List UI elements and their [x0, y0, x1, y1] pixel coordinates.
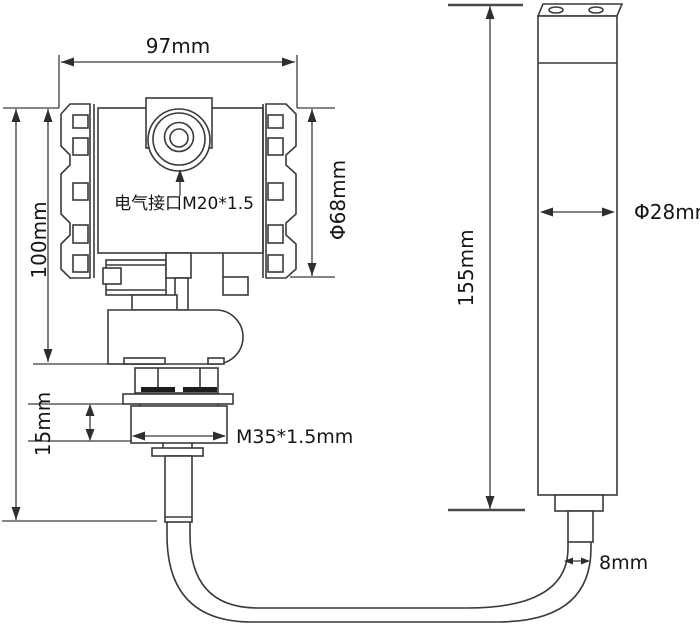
arrowhead-right	[581, 558, 590, 565]
collar-tab-left	[124, 358, 165, 364]
thread-spec-label: M35*1.5mm	[236, 426, 353, 448]
left-rib-fin	[73, 255, 88, 272]
dimension-thread-height: 15mm	[28, 392, 132, 456]
arrowhead-down	[308, 263, 317, 276]
bracket-foot	[132, 295, 177, 310]
housing-diameter-label: Φ68mm	[326, 160, 350, 240]
probe-cap-hole	[549, 7, 563, 13]
bracket-step-block	[223, 277, 248, 295]
arrowhead-up	[86, 404, 95, 416]
right-rib-fin	[268, 255, 283, 272]
dimension-drawing: 97mm 100mm Φ68mm 电气接口M20*1.5	[0, 0, 700, 629]
right-rib-fin	[268, 138, 283, 155]
arrowhead-right	[282, 58, 295, 67]
arrowhead-down	[44, 349, 53, 362]
technical-drawing-canvas: 97mm 100mm Φ68mm 电气接口M20*1.5	[0, 0, 700, 629]
arrowhead-down	[12, 507, 21, 520]
cable-outer-edge	[167, 522, 591, 622]
rounded-sensor-body	[108, 310, 243, 364]
dimension-housing-width: 97mm	[59, 34, 297, 108]
flange-plate	[123, 394, 233, 404]
cable-diameter-label: 8mm	[599, 552, 648, 574]
dimension-probe-length: 155mm	[448, 5, 525, 510]
probe-bottom-step	[555, 495, 603, 511]
thread-height-label: 15mm	[31, 392, 55, 456]
dimension-housing-diameter: Φ68mm	[290, 108, 350, 277]
housing-width-label: 97mm	[146, 34, 210, 58]
connection-cable	[167, 522, 591, 622]
electrical-port-bore	[170, 129, 188, 147]
housing-height-label: 100mm	[27, 201, 51, 278]
transmitter-front-view	[61, 98, 296, 522]
probe-diameter-label: Φ28mm	[634, 200, 700, 224]
left-rib-fin	[73, 138, 88, 155]
arrowhead-up	[12, 109, 21, 122]
outlet-pipe	[165, 456, 192, 522]
process-connection	[123, 358, 233, 522]
left-rib-fin	[73, 183, 88, 200]
right-rib-fin	[268, 183, 283, 200]
probe-cap-hole	[589, 7, 603, 13]
electrical-port-label: 电气接口M20*1.5	[114, 194, 254, 214]
right-rib-fin	[268, 115, 283, 128]
thread-nut	[131, 406, 227, 443]
probe-body	[538, 16, 617, 495]
bracket-side-lug	[103, 268, 121, 284]
arrowhead-up	[308, 109, 317, 122]
right-rib-assembly	[263, 104, 296, 278]
washer	[152, 448, 203, 456]
probe-side-view	[538, 4, 622, 542]
arrowhead-left	[61, 58, 74, 67]
cable-gland	[568, 511, 593, 542]
terminal-bracket	[103, 253, 248, 310]
arrowhead-down	[86, 429, 95, 441]
left-rib-fin	[73, 115, 88, 128]
thread-shadow-right	[183, 387, 217, 392]
arrowhead-up	[486, 6, 495, 19]
arrowhead-up	[44, 109, 53, 122]
left-rib-fin	[73, 225, 88, 243]
right-rib-fin	[268, 225, 283, 243]
bracket-block	[166, 253, 191, 278]
collar-tab-right	[208, 358, 224, 364]
arrowhead-down	[486, 496, 495, 509]
thread-shadow-left	[141, 387, 175, 392]
dimension-cable-diameter: 8mm	[564, 552, 648, 574]
probe-length-label: 155mm	[454, 229, 478, 306]
left-rib-assembly	[61, 104, 94, 278]
cable-inner-edge	[190, 522, 568, 608]
